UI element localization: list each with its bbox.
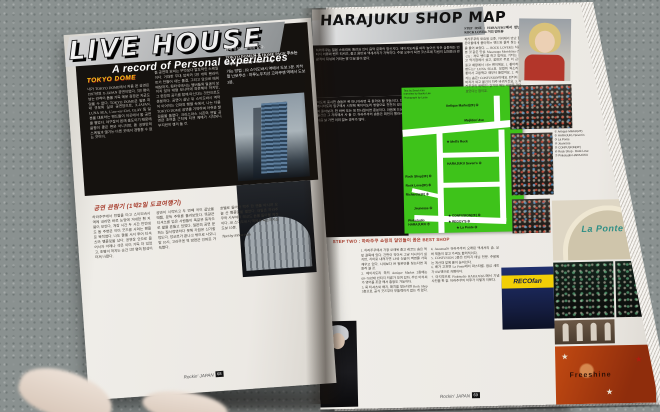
page-gutter-shadow (300, 8, 343, 405)
left-page-footer: Rockin' JAPAN 68 (183, 371, 223, 380)
tower-building (261, 102, 287, 174)
collage-sign: Freeshine (570, 371, 612, 379)
magazine-photo: HARAJUKU SHOP MAP 하라주쿠는 일본 스트리트 패션과 인디 음… (0, 0, 660, 412)
photo-small-shop (512, 199, 551, 234)
map-credits: Text by Serah Kim Interview by Naoko Lee… (404, 89, 431, 100)
left-page: LIVE HOUSE A record of Personal experien… (64, 18, 337, 400)
review-col3: 호텔로 돌아와 맥주 한 캔을 마시며 오늘 산 팸플릿을 펼쳤다. 내일은 하… (220, 203, 286, 317)
recofan-sign: RECOfan (501, 275, 553, 289)
mannequin (576, 323, 582, 341)
map-label-jeunesse: Jeunesse ④ (414, 207, 432, 211)
tokyo-dome-col2: 돔 공연의 묘미는 무엇보다 압도적인 스케일이다. 거대한 무대 장치와 5만… (154, 66, 226, 186)
mannequin (604, 322, 610, 340)
review-col3-text: 호텔로 돌아와 맥주 한 캔을 마시며 오늘 산 팸플릿을 펼쳤다. 내일은 하… (220, 203, 279, 231)
map-label-mells-rock: ★ Mell's Rock (447, 140, 468, 144)
star-icon: ★ (606, 387, 613, 396)
star-icon: ★ (561, 352, 568, 361)
right-page-footer: Rockin' JAPAN 69 (440, 392, 480, 399)
woman-red-top (524, 54, 564, 81)
map-label-reggys: ★ REGGY'S ② (448, 220, 470, 224)
star-icon: ★ (635, 355, 642, 364)
map-label-pinkstudio: Pinkstudio HARAJUKU ⑦ (408, 219, 430, 226)
step-two-col2: 4. Jeunesse는 하라주쿠의 오래된 액세서리 숍. 실버 제품이 많고… (431, 246, 502, 397)
page-number: 68 (215, 371, 223, 378)
step-two-heading: STEP TWO : 하라주쿠 쇼핑의 달인들이 꼽은 BEST SHOP (333, 237, 450, 245)
map-label-rock-shop: Rock Shop(3F) ⑥ (405, 175, 431, 179)
photo-mannequin-shop (554, 319, 614, 344)
photo-shop-interior (510, 133, 553, 196)
tokyo-dome-heading: TOKYO DOME (87, 74, 137, 84)
tokyo-dome-info: 예매 정보는 아래와 같다. TOKYO DOME의 홈 HOME PAGE 주… (225, 42, 308, 99)
step-two-col1: 1. 하라주쿠에서 가장 오래된 중고 레코드 숍은 역 앞 골목에 있다. 간… (361, 247, 430, 398)
magazine-name: Rockin' JAPAN (183, 372, 213, 379)
review-col2: 공연이 시작되고 두 번째 곡이 끝났을 때쯤, 문득 주위를 둘러보았다. 똑… (156, 207, 223, 347)
photo-street-crowd (509, 84, 572, 129)
magazine-name: Rockin' JAPAN (440, 393, 470, 399)
mannequin (590, 323, 596, 341)
mannequin (562, 323, 568, 341)
photo-market-street (553, 261, 614, 318)
review-col1: 하라주쿠에서 전철을 타고 스이도바시 역에 내리면 바로 눈앞에 거대한 흰 … (92, 211, 159, 351)
author-credit: Text by Inhee Kim (222, 231, 280, 240)
page-number: 69 (472, 392, 480, 398)
access-line: 가는 방법 : JR 스이도바시 역에서 도보 3분. 지하철 난보쿠선 · 마… (226, 64, 307, 87)
map-label-richards: Richards(1F) ⑥ (406, 193, 429, 197)
step-one-heading: STEP ONE : HARAJUKU에서 만난 ROCK LOVER 거리 인… (464, 25, 520, 35)
map-label-rock-love: Rock Love(3F) ⑥ (406, 184, 432, 188)
photo-tokyo-dome-hotel (232, 92, 310, 181)
map-caption-list: ① Antique Market(2F) ② HARAJUKU Seven's … (554, 130, 601, 197)
tokyo-dome-col1: 내가 TOKYO DOME에서 처음 본 공연은 1997년의 X-JAPAN … (87, 83, 156, 191)
photo-orange-collage: ★ ★ ★ Freeshine (555, 344, 656, 408)
photo-woman-portrait (518, 18, 571, 81)
photo-recofan-storefront: RECOfan (501, 267, 554, 330)
